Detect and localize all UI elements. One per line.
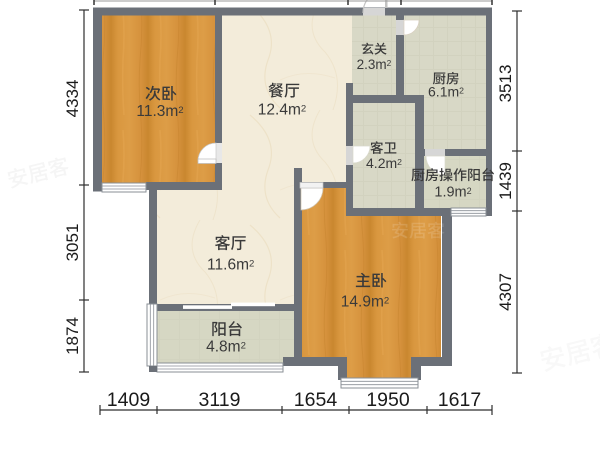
svg-text:1617: 1617 bbox=[438, 389, 481, 411]
svg-text:4.2m2: 4.2m2 bbox=[366, 155, 402, 171]
svg-text:11.6m2: 11.6m2 bbox=[207, 257, 254, 274]
svg-text:1654: 1654 bbox=[294, 389, 338, 411]
svg-text:4334: 4334 bbox=[63, 80, 82, 118]
svg-text:12.4m2: 12.4m2 bbox=[258, 102, 306, 119]
svg-text:1409: 1409 bbox=[107, 389, 150, 411]
svg-text:1.9m2: 1.9m2 bbox=[434, 185, 471, 201]
svg-text:1874: 1874 bbox=[63, 317, 82, 355]
svg-text:3119: 3119 bbox=[199, 389, 241, 411]
svg-text:4307: 4307 bbox=[496, 273, 515, 311]
svg-text:11.3m2: 11.3m2 bbox=[136, 103, 183, 120]
svg-text:14.9m2: 14.9m2 bbox=[341, 294, 389, 311]
svg-text:4.8m2: 4.8m2 bbox=[206, 339, 246, 356]
svg-text:3051: 3051 bbox=[63, 224, 82, 262]
svg-text:1950: 1950 bbox=[366, 389, 410, 411]
svg-text:6.1m2: 6.1m2 bbox=[428, 84, 464, 100]
svg-text:2.3m2: 2.3m2 bbox=[357, 57, 392, 72]
svg-text:1439: 1439 bbox=[496, 162, 515, 200]
svg-text:3513: 3513 bbox=[496, 65, 515, 103]
